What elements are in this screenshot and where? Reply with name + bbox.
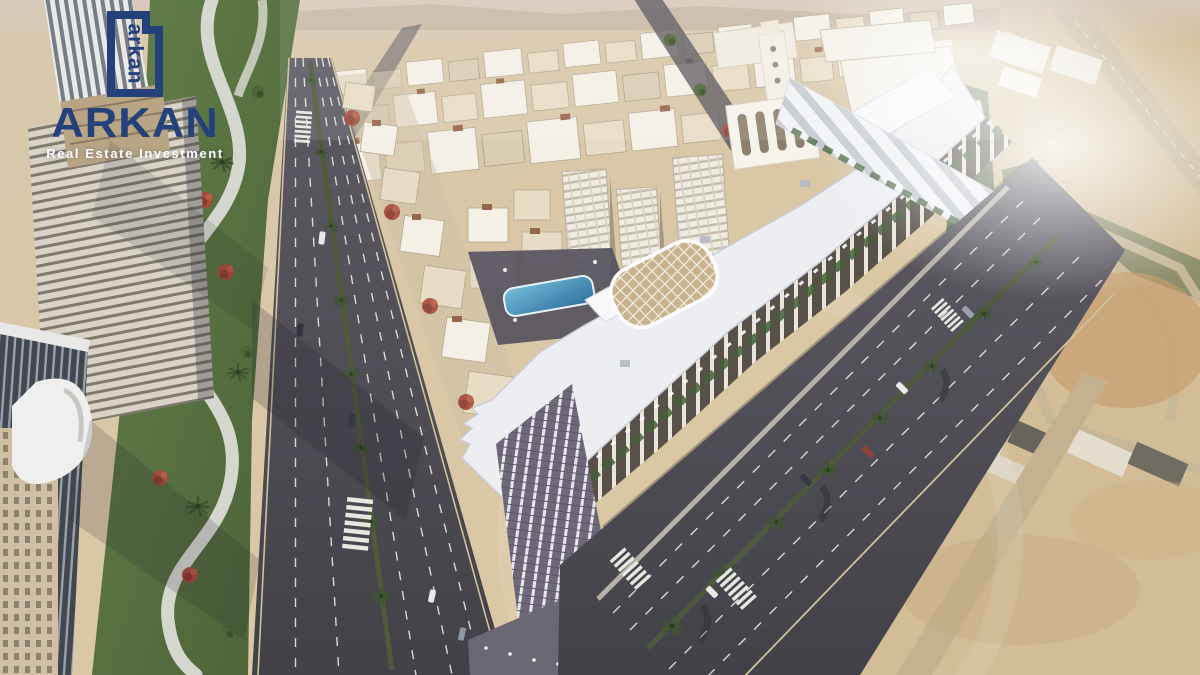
aerial-render-image: arkan ARKAN Real Estate Investment <box>0 0 1200 675</box>
brand-tagline: Real Estate Investment <box>28 146 242 161</box>
brand-name: ARKAN <box>28 102 242 143</box>
arkan-logo: arkan ARKAN Real Estate Investment <box>28 10 242 161</box>
logo-mark-icon: arkan <box>106 10 164 98</box>
logo-monogram: arkan <box>106 10 164 98</box>
